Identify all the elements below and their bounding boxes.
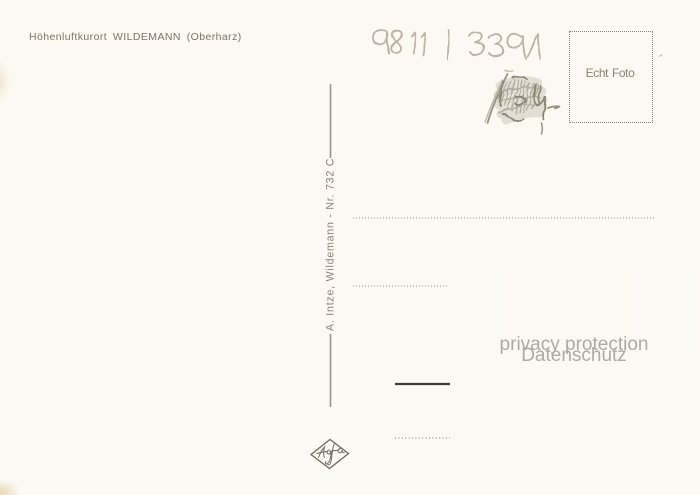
svg-text:A. Intze, Wildemann - Nr. 732: A. Intze, Wildemann - Nr. 732 C <box>325 158 337 331</box>
